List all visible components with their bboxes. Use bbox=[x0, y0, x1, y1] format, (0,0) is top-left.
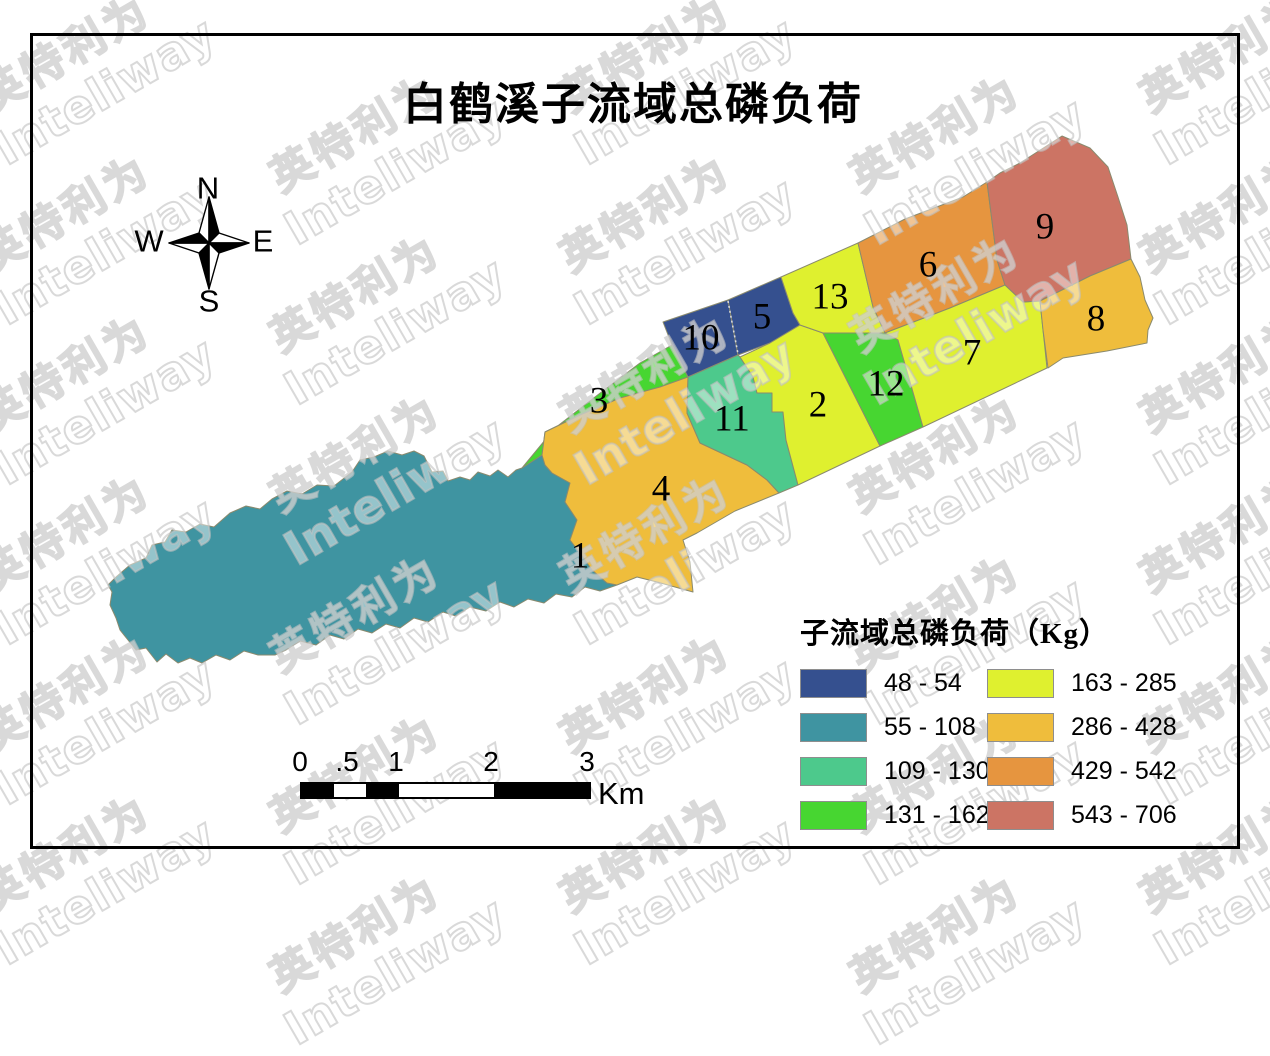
legend-item: 429 - 542 bbox=[987, 757, 1174, 786]
legend-range-label: 131 - 162 bbox=[884, 801, 990, 830]
scale-tick-1: 1 bbox=[388, 746, 404, 778]
region-label-3: 3 bbox=[590, 383, 609, 420]
scale-segment bbox=[494, 784, 589, 797]
watermark-text: Inteliway bbox=[275, 886, 515, 1056]
legend-item: 109 - 130 bbox=[800, 757, 987, 786]
legend-column-left: 48 - 54 55 - 108 109 - 130 131 - 162 bbox=[800, 669, 987, 845]
region-label-1: 1 bbox=[571, 538, 590, 575]
scale-tick-3: 3 bbox=[579, 746, 595, 778]
map-title: 白鹤溪子流域总磷负荷 bbox=[403, 68, 863, 132]
region-label-4: 4 bbox=[652, 471, 671, 508]
region-label-7: 7 bbox=[963, 335, 982, 372]
region-label-12: 12 bbox=[868, 366, 905, 403]
scale-tick-2: 2 bbox=[483, 746, 499, 778]
region-label-13: 13 bbox=[812, 279, 849, 316]
legend-swatch bbox=[987, 669, 1054, 698]
region-label-2: 2 bbox=[809, 387, 828, 424]
legend-swatch bbox=[800, 757, 867, 786]
legend-range-label: 429 - 542 bbox=[1071, 757, 1177, 786]
legend-item: 543 - 706 bbox=[987, 801, 1174, 830]
scale-bar: 0 .5 1 2 3 Km bbox=[298, 746, 658, 802]
region-label-5: 5 bbox=[753, 299, 772, 336]
watermark-text: Inteliway bbox=[855, 886, 1095, 1056]
region-label-6: 6 bbox=[919, 247, 938, 284]
scale-bar-segments bbox=[300, 782, 591, 799]
legend: 子流域总磷负荷（Kg） 48 - 54 55 - 108 109 - 130 1… bbox=[800, 610, 1200, 845]
legend-range-label: 543 - 706 bbox=[1071, 801, 1177, 830]
legend-swatch bbox=[987, 757, 1054, 786]
legend-column-right: 163 - 285 286 - 428 429 - 542 543 - 706 bbox=[987, 669, 1174, 845]
region-label-10: 10 bbox=[683, 320, 720, 357]
legend-range-label: 48 - 54 bbox=[884, 669, 962, 698]
legend-item: 286 - 428 bbox=[987, 713, 1174, 742]
legend-range-label: 163 - 285 bbox=[1071, 669, 1177, 698]
scale-segment bbox=[399, 784, 494, 797]
scale-tick-0: 0 bbox=[292, 746, 308, 778]
legend-item: 48 - 54 bbox=[800, 669, 987, 698]
legend-range-label: 286 - 428 bbox=[1071, 713, 1177, 742]
legend-swatch bbox=[987, 801, 1054, 830]
legend-swatch bbox=[800, 669, 867, 698]
region-label-9: 9 bbox=[1036, 209, 1055, 246]
legend-title: 子流域总磷负荷（Kg） bbox=[800, 610, 1200, 652]
scale-segment bbox=[302, 784, 334, 797]
scale-tick-05: .5 bbox=[335, 746, 358, 778]
legend-range-label: 55 - 108 bbox=[884, 713, 976, 742]
region-label-11: 11 bbox=[714, 401, 750, 438]
legend-item: 163 - 285 bbox=[987, 669, 1174, 698]
legend-range-label: 109 - 130 bbox=[884, 757, 990, 786]
scale-unit: Km bbox=[598, 776, 645, 812]
scale-segment bbox=[366, 784, 399, 797]
scale-segment bbox=[334, 784, 366, 797]
legend-swatch bbox=[987, 713, 1054, 742]
legend-item: 55 - 108 bbox=[800, 713, 987, 742]
legend-swatch bbox=[800, 713, 867, 742]
region-label-8: 8 bbox=[1087, 301, 1106, 338]
north-arrow-icon bbox=[149, 183, 269, 303]
legend-swatch bbox=[800, 801, 867, 830]
legend-item: 131 - 162 bbox=[800, 801, 987, 830]
compass-rose: N E S W bbox=[130, 162, 300, 322]
